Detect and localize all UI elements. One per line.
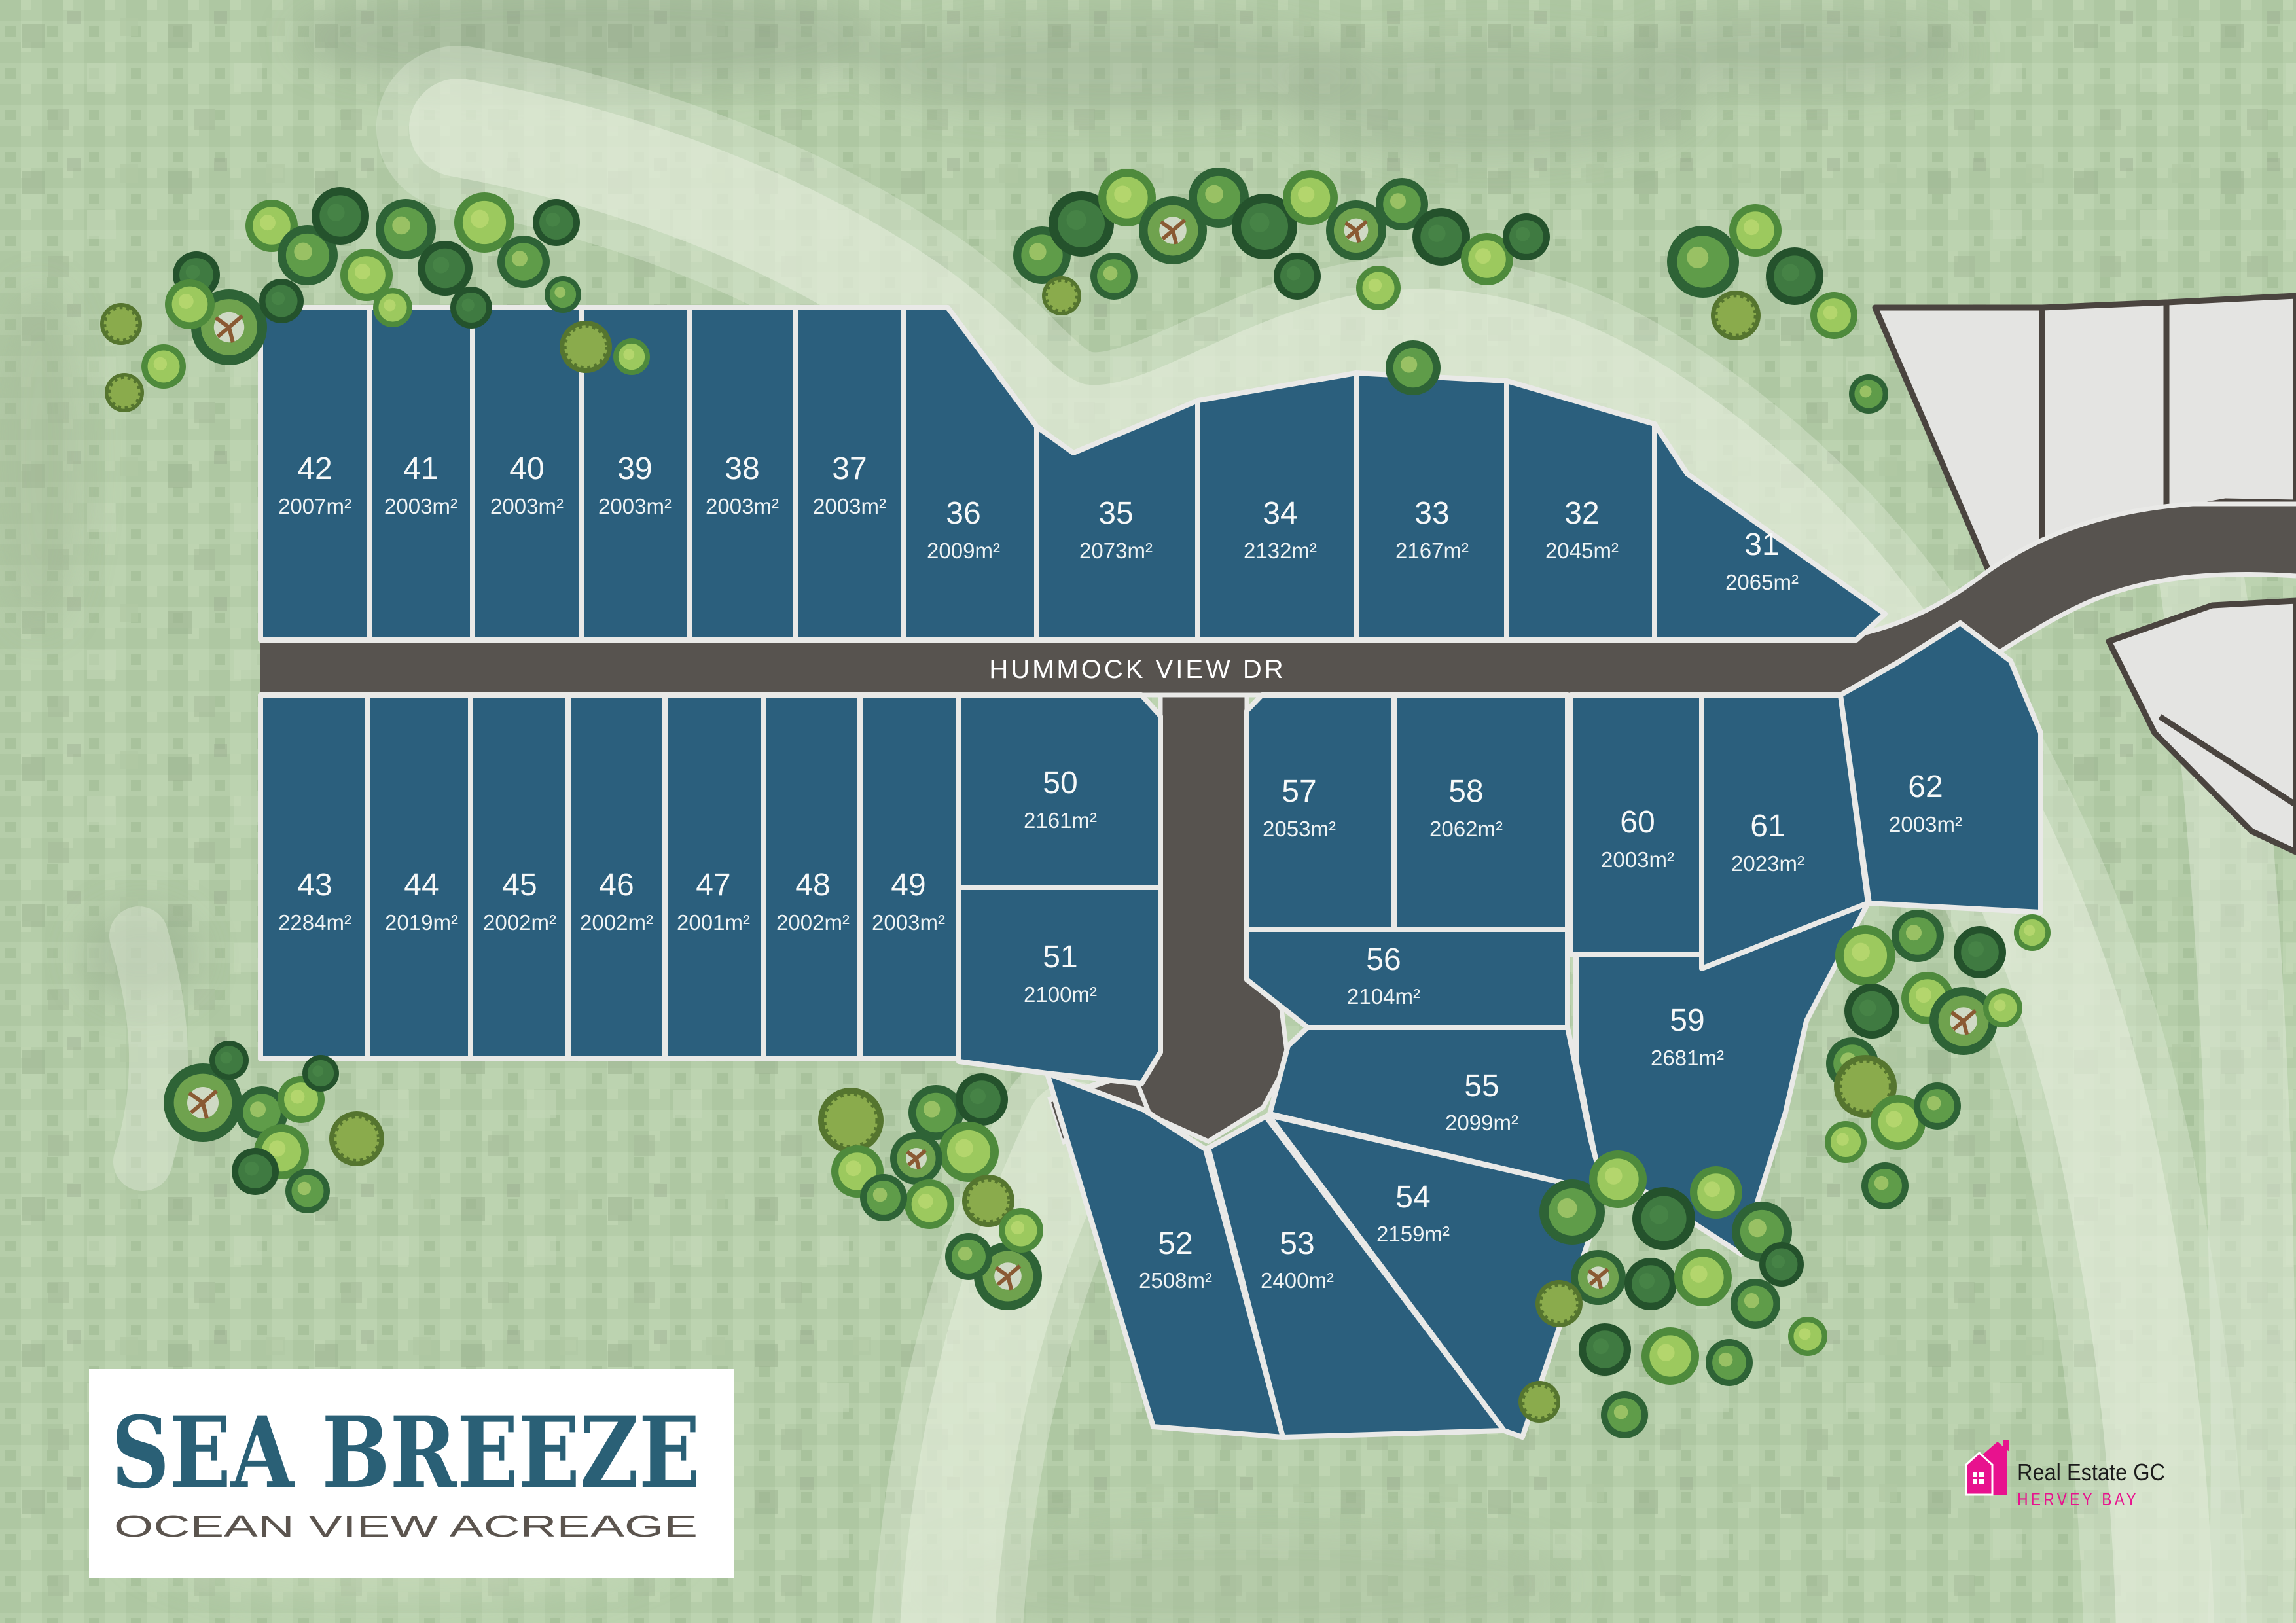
lot-57-number: 57	[1282, 774, 1316, 809]
tree-icon	[100, 303, 142, 345]
lot-58-area: 2062m²	[1429, 817, 1503, 841]
agency-name: Real Estate GC	[2017, 1459, 2165, 1486]
lot-59-number: 59	[1670, 1003, 1704, 1038]
tree-icon	[105, 373, 144, 412]
tree-icon	[1954, 926, 2006, 978]
cul-de-sac-road-overlay	[1162, 682, 1245, 978]
tree-icon	[945, 1233, 992, 1280]
tree-icon	[1589, 1150, 1647, 1208]
lot-37-area: 2003m²	[813, 494, 886, 518]
tree-icon	[890, 1132, 942, 1185]
tree-icon	[1667, 226, 1739, 298]
lot-48-number: 48	[795, 868, 830, 902]
tree-icon	[141, 344, 186, 389]
lot-56	[1247, 929, 1568, 1027]
brand-panel: SEA BREEZE OCEAN VIEW ACREAGE	[89, 1369, 734, 1578]
tree-icon	[418, 241, 473, 296]
lot-49-number: 49	[891, 868, 925, 902]
tree-icon	[373, 288, 412, 327]
lot-50-number: 50	[1043, 766, 1077, 800]
lot-60-area: 2003m²	[1601, 847, 1674, 872]
lot-41-area: 2003m²	[384, 494, 457, 518]
tree-icon	[560, 321, 612, 373]
tree-icon	[1861, 1162, 1909, 1209]
lot-35-area: 2073m²	[1079, 539, 1153, 563]
lot-41-number: 41	[403, 452, 438, 486]
tree-icon	[1711, 291, 1761, 340]
lot-36-number: 36	[946, 496, 980, 531]
tree-icon	[1503, 213, 1550, 260]
tree-icon	[1835, 925, 1895, 986]
lot-39-number: 39	[617, 452, 652, 486]
lot-40-area: 2003m²	[490, 494, 564, 518]
tree-icon	[545, 276, 581, 313]
lot-40-number: 40	[509, 452, 544, 486]
lot-54-number: 54	[1395, 1180, 1430, 1215]
lot-49-area: 2003m²	[872, 910, 945, 935]
tree-icon	[1810, 292, 1857, 339]
lot-44-number: 44	[404, 868, 439, 902]
tree-icon	[999, 1208, 1043, 1253]
tree-icon	[1788, 1317, 1827, 1356]
tree-icon	[613, 338, 650, 375]
tree-icon	[1825, 1121, 1867, 1163]
lot-37-number: 37	[832, 452, 867, 486]
tree-icon	[905, 1179, 954, 1229]
tree-icon	[1386, 340, 1441, 395]
lot-39-area: 2003m²	[598, 494, 672, 518]
tree-icon	[450, 287, 492, 329]
tree-icon	[329, 1111, 384, 1166]
tree-icon	[1641, 1327, 1699, 1385]
lot-56-shape	[1247, 929, 1568, 1027]
tree-icon	[1844, 984, 1899, 1039]
lot-31-number: 31	[1744, 527, 1779, 562]
tree-icon	[312, 187, 369, 245]
tree-icon	[1274, 253, 1321, 300]
lot-51-area: 2100m²	[1024, 982, 1097, 1007]
lot-61-number: 61	[1750, 809, 1785, 844]
lot-60-number: 60	[1620, 805, 1655, 840]
agency-location: HERVEY BAY	[2017, 1489, 2139, 1509]
lot-31-area: 2065m²	[1725, 570, 1799, 594]
lot-53-number: 53	[1280, 1226, 1314, 1261]
tree-icon	[1601, 1391, 1648, 1438]
lot-58-shape	[1394, 695, 1568, 929]
lot-62-number: 62	[1908, 770, 1943, 804]
tree-icon	[1624, 1258, 1677, 1310]
lot-57	[1247, 695, 1394, 929]
tree-icon	[1731, 1279, 1780, 1329]
lot-54-area: 2159m²	[1376, 1222, 1450, 1246]
lot-61-area: 2023m²	[1731, 851, 1804, 876]
lot-44-area: 2019m²	[385, 910, 458, 935]
lot-47-area: 2001m²	[677, 910, 750, 935]
tree-icon	[1632, 1187, 1695, 1250]
tree-icon	[302, 1055, 339, 1092]
tree-icon	[1766, 247, 1823, 305]
lot-47-number: 47	[696, 868, 730, 902]
tree-icon	[1983, 988, 2022, 1027]
lot-34-number: 34	[1263, 496, 1297, 531]
tree-icon	[1690, 1166, 1742, 1219]
lot-32-area: 2045m²	[1545, 539, 1619, 563]
lot-46-area: 2002m²	[580, 910, 653, 935]
lot-42-area: 2007m²	[278, 494, 351, 518]
lot-57-area: 2053m²	[1263, 817, 1336, 841]
tree-icon	[860, 1174, 907, 1221]
tree-icon	[497, 236, 550, 288]
lot-58-number: 58	[1448, 774, 1483, 809]
tree-icon	[1849, 374, 1888, 414]
lot-51-number: 51	[1043, 940, 1077, 974]
tree-icon	[1518, 1381, 1560, 1423]
lot-33-area: 2167m²	[1395, 539, 1469, 563]
lot-48-area: 2002m²	[776, 910, 850, 935]
future-lot	[2166, 296, 2296, 512]
lot-43-area: 2284m²	[278, 910, 351, 935]
tree-icon	[259, 279, 304, 323]
tree-icon	[1579, 1323, 1631, 1376]
lot-50-area: 2161m²	[1024, 808, 1097, 832]
lot-36-area: 2009m²	[927, 539, 1000, 563]
tree-icon	[1729, 204, 1782, 257]
lot-59-area: 2681m²	[1651, 1046, 1724, 1070]
lot-55-area: 2099m²	[1445, 1111, 1518, 1135]
brand-tagline: OCEAN VIEW ACREAGE	[114, 1509, 698, 1543]
tree-icon	[1914, 1082, 1961, 1130]
lot-52-area: 2508m²	[1139, 1268, 1212, 1293]
lot-45-number: 45	[502, 868, 537, 902]
lot-38-area: 2003m²	[706, 494, 779, 518]
tree-icon	[1892, 910, 1944, 962]
tree-icon	[533, 199, 580, 246]
lot-55-number: 55	[1464, 1069, 1499, 1103]
tree-icon	[956, 1073, 1008, 1126]
lot-53-area: 2400m²	[1261, 1268, 1334, 1293]
lot-46-number: 46	[599, 868, 634, 902]
tree-icon	[1090, 253, 1138, 300]
tree-icon	[285, 1169, 330, 1213]
tree-icon	[818, 1088, 884, 1153]
masterplan-map: 42 2007m² 41 2003m² 40 2003m² 39 2003m² …	[0, 0, 2296, 1623]
lot-42-number: 42	[297, 452, 332, 486]
lot-52-number: 52	[1158, 1226, 1193, 1261]
masterplan-page: 42 2007m² 41 2003m² 40 2003m² 39 2003m² …	[0, 0, 2296, 1623]
street-name-label: HUMMOCK VIEW DR	[989, 655, 1285, 684]
tree-icon	[2014, 914, 2051, 951]
lot-32-number: 32	[1564, 496, 1599, 531]
lot-56-number: 56	[1366, 942, 1401, 977]
lot-43-number: 43	[297, 868, 332, 902]
tree-icon	[209, 1041, 249, 1080]
tree-icon	[1042, 276, 1081, 315]
lot-35-number: 35	[1098, 496, 1133, 531]
lot-38-number: 38	[725, 452, 759, 486]
tree-icon	[1356, 266, 1401, 310]
brand-title: SEA BREEZE	[111, 1395, 700, 1510]
lot-57-shape	[1247, 695, 1394, 929]
lot-58	[1394, 695, 1568, 929]
tree-icon	[232, 1148, 279, 1195]
tree-icon	[1759, 1242, 1804, 1287]
tree-icon	[165, 279, 215, 329]
tree-icon	[1535, 1280, 1583, 1327]
lot-33-number: 33	[1414, 496, 1449, 531]
lot-56-area: 2104m²	[1347, 984, 1420, 1008]
tree-icon	[939, 1122, 999, 1182]
tree-icon	[1674, 1249, 1732, 1306]
lot-45-area: 2002m²	[483, 910, 556, 935]
tree-icon	[1706, 1339, 1753, 1386]
lot-62-area: 2003m²	[1889, 812, 1962, 836]
lot-34-area: 2132m²	[1244, 539, 1317, 563]
